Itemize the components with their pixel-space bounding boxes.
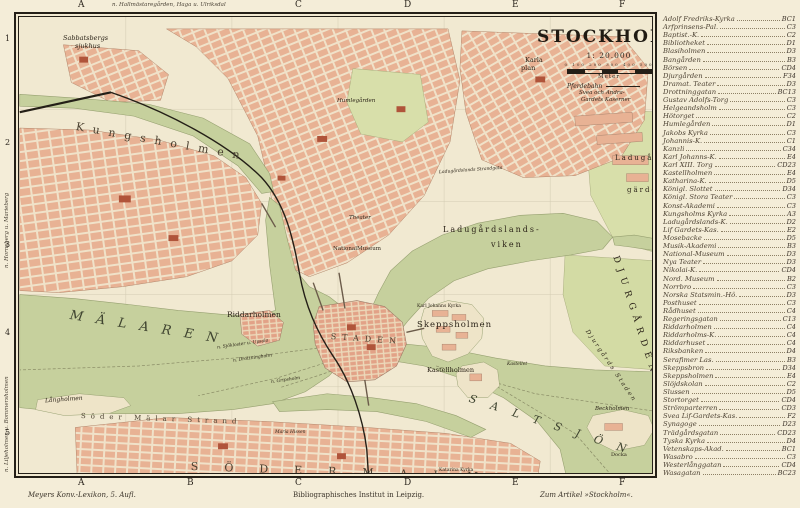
index-entry-name: National-Museum [663,250,725,258]
index-entry: Serafimer Las.B3 [663,356,796,364]
index-entry-gridref: C2 [787,380,796,388]
dotted-leader [727,255,785,256]
dotted-leader [719,109,785,110]
dotted-leader [730,101,784,102]
index-entry-gridref: BC13 [778,88,796,96]
index-entry-name: Lif Gardets-Kas. [663,226,719,234]
index-entry: RegeringsgatanC13 [663,315,796,323]
index-entry-name: Vetenskaps-Akad. [663,445,724,453]
index-entry: BibliotheketD1 [663,39,796,47]
index-entry: WasagatanBC23 [663,469,796,477]
index-entry-gridref: D5 [787,234,796,242]
grid-number-left-2: 2 [5,138,10,147]
index-entry: RiddarholmenC4 [663,323,796,331]
index-entry: Kungsholms KyrkaA3 [663,210,796,218]
dotted-leader [720,28,785,29]
index-entry-name: Ladugårdslands-K. [663,218,728,226]
index-entry-name: Wasabro [663,453,693,461]
index-entry: StrömparterrenCD3 [663,404,796,412]
dotted-leader [726,450,780,451]
index-entry: Dramat. TeaterD3 [663,80,796,88]
grid-letter-top-F: F [619,0,625,10]
index-entry-name: Norska Statsmin.-Hô. [663,291,737,299]
index-entry: DjurgårdenF34 [663,72,796,80]
index-entry: Königl. Stora TeaterC3 [663,193,796,201]
dotted-leader [704,239,785,240]
index-entry-gridref: C3 [787,23,796,31]
index-entry-gridref: CD4 [781,396,796,404]
index-entry-name: Posthuset [663,299,697,307]
label-humlegarden: Humlegården [337,99,375,105]
index-entry: Gustav Adolfs-TorgC3 [663,96,796,104]
index-entry-name: Kanzli [663,145,684,153]
dotted-leader [730,223,785,224]
index-entry-name: Jakobs Kyrka [663,129,708,137]
index-entry-name: Humlegården [663,120,710,128]
index-entry-gridref: C3 [787,299,796,307]
grid-number-left-1: 1 [5,34,10,43]
index-entry-gridref: CD4 [781,64,796,72]
dotted-leader [714,328,785,329]
dotted-leader [703,263,784,264]
index-entry-name: Karl Johanns-K. [663,153,717,161]
index-entry-name: Blasiholmen [663,47,705,55]
grid-letter-bottom-C: C [295,478,302,488]
index-entry-gridref: CD4 [781,461,796,469]
index-entry-gridref: C4 [787,331,796,339]
index-entry-name: Dramat. Teater [663,80,715,88]
dotted-leader [720,434,775,435]
dotted-leader [739,296,784,297]
index-entry-gridref: D4 [787,347,796,355]
index-entry-name: Baptist.-K. [663,31,699,39]
dotted-leader [737,20,780,21]
index-entry-gridref: D4 [787,437,796,445]
index-entry-name: Riddarholmen [663,323,712,331]
dotted-leader [686,150,780,151]
dotted-leader [699,304,785,305]
index-entry-name: Riddarhuset [663,339,705,347]
grid-letter-bottom-E: E [512,478,519,488]
map-scale-text: 1: 20.000 [564,51,653,60]
dotted-leader [701,36,785,37]
index-entry-gridref: D1 [787,120,796,128]
index-entry: Karl XIII. TorgCD23 [663,161,796,169]
index-entry-name: Skeppsbron [663,364,704,372]
index-entry-gridref: D34 [782,364,796,372]
index-entry-gridref: C4 [787,307,796,315]
index-entry: SlöjdskolanC2 [663,380,796,388]
index-entry: Tyska KyrkaD4 [663,437,796,445]
dotted-leader [707,52,784,53]
index-entry-name: Norrbro [663,283,691,291]
dotted-leader [710,134,785,135]
dotted-leader [717,85,784,86]
index-entry: National-MuseumD3 [663,250,796,258]
index-entry-gridref: C3 [787,453,796,461]
index-entry: TrädgårdsgatanCD23 [663,429,796,437]
index-entry: Johannis-K.C1 [663,137,796,145]
index-entry-gridref: D1 [787,39,796,47]
dotted-leader [704,142,785,143]
dotted-leader [718,247,785,248]
index-entry: KastellholmenE4 [663,169,796,177]
dotted-leader [718,336,784,337]
index-entry: Lif Gardets-Kas.E2 [663,226,796,234]
index-entry-gridref: D3 [787,47,796,55]
index-entry-gridref: C34 [783,145,796,153]
label-riddarholmen: Riddarholmen [227,311,281,319]
grid-letter-top-A: A [78,0,85,10]
left-direction-note-upper: n. Hornsberg u. Marieberg [4,193,10,268]
index-entry-name: Riddarholms-K. [663,331,716,339]
index-entry: HumlegårdenD1 [663,120,796,128]
dotted-leader [692,393,785,394]
index-entry: RådhusetC4 [663,307,796,315]
index-entry-gridref: E4 [787,169,796,177]
index-entry: Nikolai-K.CD4 [663,266,796,274]
index-entry-gridref: D3 [787,80,796,88]
pferdebahn-line-symbol [606,86,640,87]
index-entry-gridref: C2 [787,31,796,39]
index-entry-name: Kastellholmen [663,169,712,177]
index-entry-name: Djurgården [663,72,703,80]
index-entry-gridref: C2 [787,112,796,120]
dotted-leader [717,280,785,281]
label-theater: Theater [349,216,371,222]
index-entry-name: Rådhuset [663,307,696,315]
index-entry: Adolf Fredriks-KyrkaBC1 [663,15,796,23]
dotted-leader [723,466,779,467]
index-entry: BörsenCD4 [663,64,796,72]
dotted-leader [719,158,785,159]
dotted-leader [693,288,785,289]
index-entry: Norska Statsmin.-Hô.D3 [663,291,796,299]
caption-institute: Bibliographisches Institut in Leipzig. [293,491,424,499]
index-entry-gridref: C4 [787,339,796,347]
index-entry-name: Nya Teater [663,258,701,266]
index-entry: Nya TeaterD3 [663,258,796,266]
left-direction-note-lower: n. Liljeholmen u. Bommersholmen [4,376,10,472]
index-entry: Nord. MuseumB2 [663,275,796,283]
index-entry-gridref: BC23 [778,469,796,477]
index-entry-gridref: BC1 [782,15,796,23]
dotted-leader [706,369,780,370]
index-entry-name: Bangården [663,56,701,64]
dotted-leader [712,125,784,126]
label-kaserner-2: Gardets Kaserner [581,98,630,104]
dotted-leader [717,207,785,208]
grid-letter-top-D: D [404,0,411,10]
index-entry-gridref: D3 [787,258,796,266]
dotted-leader [707,442,784,443]
scale-unit: Meter [564,74,653,80]
index-entry-gridref: E4 [787,372,796,380]
label-ladugardslandsviken-2: viken [491,241,523,249]
index-entry-gridref: B3 [787,356,796,364]
index-entry-gridref: D3 [787,291,796,299]
map-frame: STOCKHOLM 1: 20.000 0 100 200 300 400 50… [14,12,657,478]
grid-letter-bottom-B: B [187,478,194,488]
index-entry: Karl Johanns-K.E4 [663,153,796,161]
index-entry: MosebackeD5 [663,234,796,242]
index-entry-gridref: D34 [782,185,796,193]
index-entry-gridref: C3 [787,193,796,201]
index-entry-gridref: D2 [787,218,796,226]
dotted-leader [699,425,781,426]
index-entry-gridref: A3 [787,210,796,218]
dotted-leader [739,417,785,418]
dotted-leader [718,93,775,94]
grid-letter-bottom-A: A [78,478,85,488]
dotted-leader [709,182,785,183]
index-entry-name: Helgeandsholm [663,104,717,112]
label-sabbatsbergs: Sabbatsbergs [63,35,108,42]
index-entry-gridref: C1 [787,137,796,145]
index-entry-name: Drottninggatan [663,88,716,96]
label-skeppsholmen: Skeppsholmen [417,321,492,330]
label-kaserner-1: Svea och Andra- [579,91,625,97]
index-entry: StortorgetCD4 [663,396,796,404]
index-entry-gridref: C3 [787,202,796,210]
dotted-leader [720,320,781,321]
label-kastellholmen: Kastellholmen [427,367,474,374]
index-entry-name: Riksbanken [663,347,703,355]
grid-letter-bottom-D: D [404,478,411,488]
index-entry-name: Westerlånggatan [663,461,721,469]
legend-pferdebahn-label: Pferdebahn [567,83,602,90]
index-entry-name: Börsen [663,64,687,72]
label-maria-hissen: Maria Hissen [275,431,306,436]
label-katarina-kyrka: Katarina Kyrka [439,469,473,474]
index-entry: NorrbroC3 [663,283,796,291]
index-entry: SkeppsholmenE4 [663,372,796,380]
index-entry-name: Königl. Slottet [663,185,713,193]
index-entry: Jakobs KyrkaC3 [663,129,796,137]
index-entry-name: Slussen [663,388,690,396]
index-entry-name: Arfprinsens-Pal. [663,23,718,31]
index-entry-name: Musik-Akademi [663,242,716,250]
grid-number-left-4: 4 [5,328,10,337]
index-entry-name: Adolf Fredriks-Kyrka [663,15,735,23]
dotted-leader [714,174,785,175]
index-entry-gridref: CD23 [777,161,796,169]
label-kastellet: Kastellet [507,363,527,368]
dotted-leader [721,231,785,232]
index-entry: WasabroC3 [663,453,796,461]
index-entry-gridref: C3 [787,96,796,104]
index-entry-gridref: C4 [787,323,796,331]
dotted-leader [703,474,776,475]
index-entry-gridref: C13 [783,315,796,323]
dotted-leader [696,117,785,118]
index-entry-gridref: D23 [782,420,796,428]
index-entry: SlussenD5 [663,388,796,396]
index-entry: Arfprinsens-Pal.C3 [663,23,796,31]
dotted-leader [715,377,785,378]
dotted-leader [705,352,784,353]
index-entry-name: Mosebacke [663,234,702,242]
index-entry-gridref: F34 [783,72,796,80]
caption-article-ref: Zum Artikel »Stockholm«. [540,491,633,499]
label-karlaplan-2: plan [521,65,535,72]
dotted-leader [707,44,785,45]
label-karlaplan-1: Karla [525,57,543,64]
label-karl-johanns-kyrka: Karl Johanns Kyrka [417,305,461,310]
index-entry-name: Slöjdskolan [663,380,703,388]
index-entry: Konst-AkademiC3 [663,202,796,210]
index-entry: Musik-AkademiB3 [663,242,796,250]
index-entry-name: Nord. Museum [663,275,715,283]
dotted-leader [698,312,785,313]
index-entry: RiddarhusetC4 [663,339,796,347]
grid-letter-top-E: E [512,0,519,10]
label-ladugards: Ladugårds- [615,155,653,162]
index-entry: PosthusetC3 [663,299,796,307]
index-entry-gridref: E2 [787,226,796,234]
index-entry-gridref: E4 [787,153,796,161]
index-entry-name: Svea Lif-Gardets-Kas. [663,412,737,420]
dotted-leader [689,69,779,70]
index-entry-gridref: B2 [787,275,796,283]
label-beckholmen: Beckholmen [595,407,629,413]
index-entry-name: Konst-Akademi [663,202,715,210]
index-entry: Riddarholms-K.C4 [663,331,796,339]
index-entry-gridref: C3 [787,283,796,291]
index-entry-gridref: CD4 [781,266,796,274]
index-entry-gridref: BC1 [782,445,796,453]
dotted-leader [719,409,779,410]
index-entry-name: Karl XIII. Torg [663,161,713,169]
index-entry: Svea Lif-Gardets-Kas.F2 [663,412,796,420]
grid-number-left-3: 3 [5,240,10,249]
legend-pferdebahn: Pferdebahn [567,83,640,90]
scale-tick-labels: 0 100 200 300 400 500 [559,62,653,67]
index-entry: DrottninggatanBC13 [663,88,796,96]
index-entry: Ladugårdslands-K.D2 [663,218,796,226]
map-canvas: STOCKHOLM 1: 20.000 0 100 200 300 400 50… [18,16,653,474]
index-entry: Baptist.-K.C2 [663,31,796,39]
atlas-plate: { "plate": { "title": "STOCKHOLM", "scal… [0,0,800,508]
grid-letter-bottom-F: F [619,478,625,488]
index-entry-name: Strömparterren [663,404,717,412]
label-sjukhus: sjukhus [75,43,100,50]
dotted-leader [715,190,781,191]
dotted-leader [705,77,781,78]
dotted-leader [695,458,785,459]
index-entry-name: Kungsholms Kyrka [663,210,727,218]
map-title: STOCKHOLM [537,27,653,47]
dotted-leader [715,166,776,167]
dotted-leader [699,271,779,272]
dotted-leader [701,401,780,402]
index-entry: Katharina-K.D5 [663,177,796,185]
index-entry: HelgeandsholmC3 [663,104,796,112]
label-nationalmuseum: NationalMuseum [333,247,381,253]
index-entry-gridref: D5 [787,177,796,185]
index-entry: Vetenskaps-Akad.BC1 [663,445,796,453]
dotted-leader [716,361,785,362]
dotted-leader [703,61,785,62]
index-entry: RiksbankenD4 [663,347,796,355]
index-entry: BangårdenB3 [663,56,796,64]
index-entry-name: Nikolai-K. [663,266,697,274]
index-entry-name: Tyska Kyrka [663,437,705,445]
index-entry: BlasiholmenD3 [663,47,796,55]
index-entry: Königl. SlottetD34 [663,185,796,193]
index-of-places: Adolf Fredriks-KyrkaBC1Arfprinsens-Pal.C… [663,15,796,478]
index-entry-name: Katharina-K. [663,177,707,185]
grid-letter-top-C: C [295,0,302,10]
index-entry-name: Stortorget [663,396,699,404]
index-entry: KanzliC34 [663,145,796,153]
label-ladugardslandsviken-1: Ladugårdslands- [443,226,541,234]
index-entry-name: Synagoge [663,420,697,428]
index-entry-gridref: CD23 [777,429,796,437]
index-entry-name: Trädgårdsgatan [663,429,718,437]
index-entry-name: Skeppsholmen [663,372,713,380]
index-entry-gridref: F2 [787,412,796,420]
label-gardet: gärdet [627,187,653,194]
index-entry: WesterlånggatanCD4 [663,461,796,469]
dotted-leader [705,385,785,386]
index-entry-name: Bibliotheket [663,39,705,47]
index-entry: SynagogeD23 [663,420,796,428]
index-entry-gridref: B3 [787,56,796,64]
index-entry-name: Johannis-K. [663,137,702,145]
caption-publisher-edition: Meyers Konv.-Lexikon, 5. Aufl. [28,491,136,499]
top-direction-note: n. Hallmästaregården, Haga u. Ulriksdal [112,2,226,8]
dotted-leader [707,344,784,345]
grid-number-left-5: 5 [5,428,10,437]
index-entry-gridref: D5 [787,388,796,396]
index-entry-name: Serafimer Las. [663,356,714,364]
index-entry-name: Regeringsgatan [663,315,718,323]
index-entry-name: Wasagatan [663,469,701,477]
dotted-leader [734,198,784,199]
index-entry-gridref: CD3 [781,404,796,412]
index-entry-gridref: C3 [787,129,796,137]
index-entry-gridref: B3 [787,242,796,250]
index-entry: SkeppsbronD34 [663,364,796,372]
index-entry-name: Königl. Stora Teater [663,193,732,201]
index-entry-gridref: D3 [787,250,796,258]
index-entry-gridref: C3 [787,104,796,112]
index-entry-name: Gustav Adolfs-Torg [663,96,728,104]
dotted-leader [729,215,785,216]
